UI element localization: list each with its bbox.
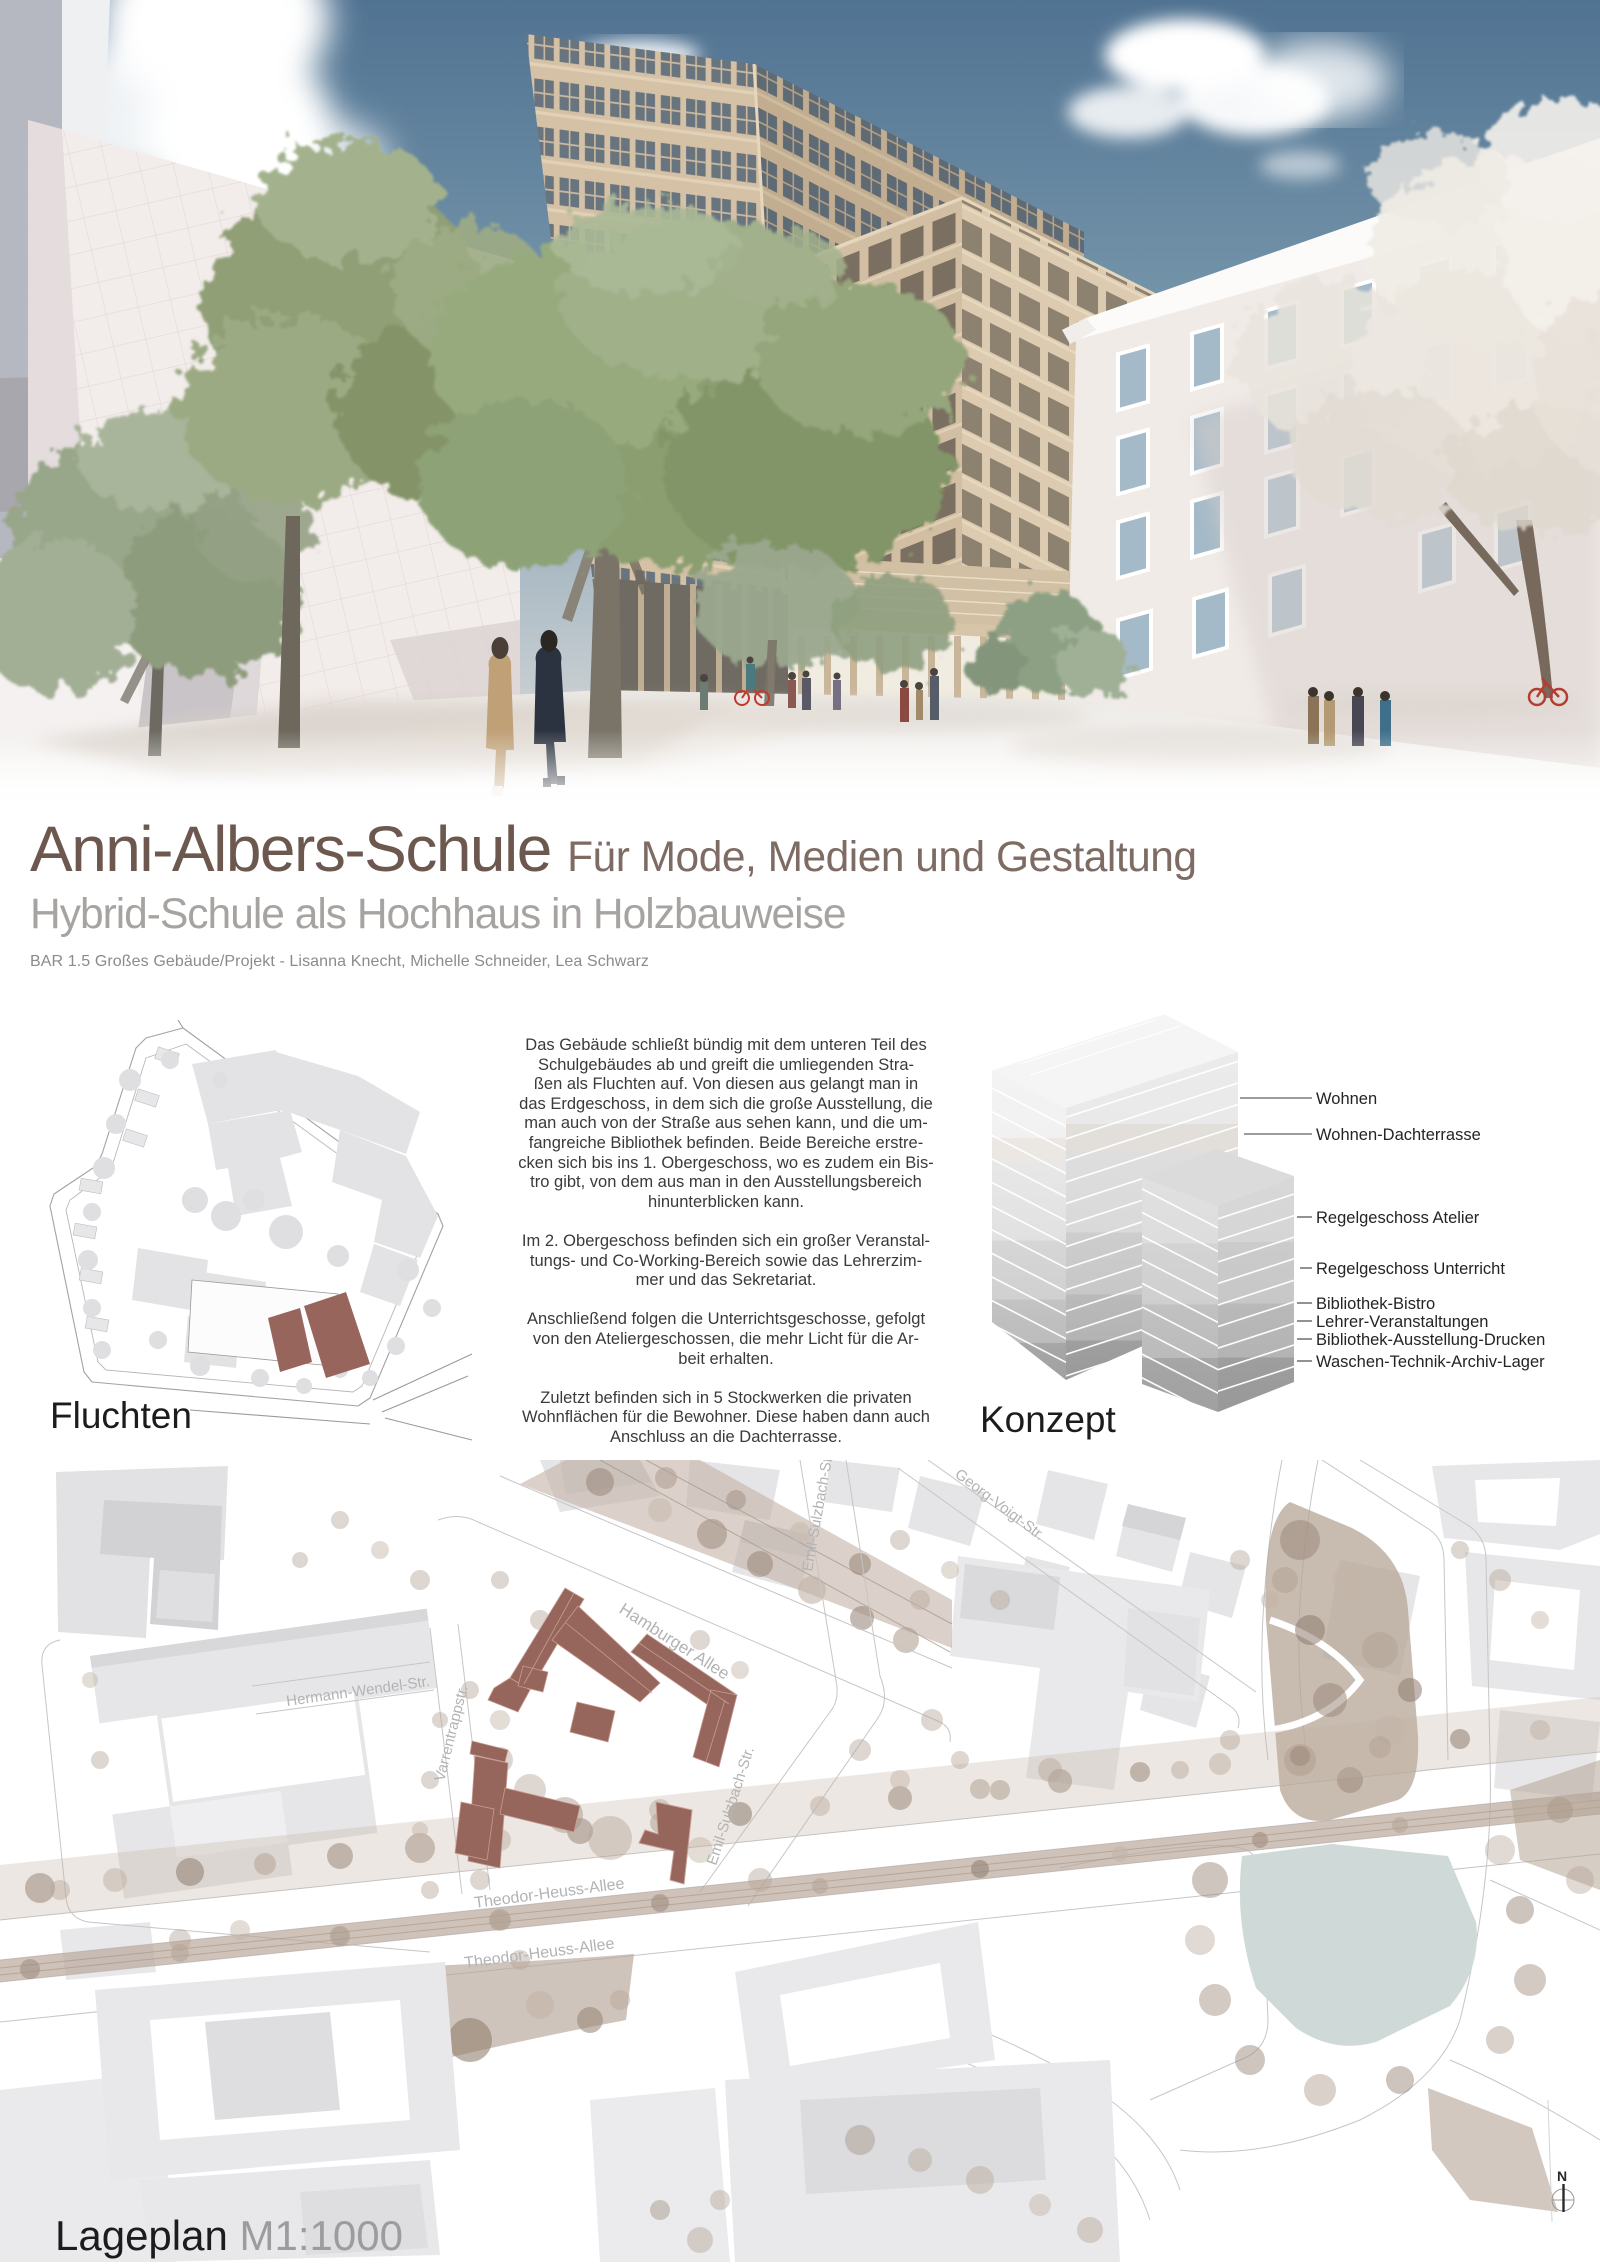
svg-text:Lageplan M1:1000: Lageplan M1:1000 bbox=[55, 2212, 403, 2259]
svg-text:Regelgeschoss Atelier: Regelgeschoss Atelier bbox=[1316, 1209, 1480, 1227]
svg-text:Bibliothek-Ausstellung-Drucken: Bibliothek-Ausstellung-Drucken bbox=[1316, 1331, 1545, 1349]
svg-text:Konzept: Konzept bbox=[980, 1399, 1116, 1440]
svg-text:Waschen-Technik-Archiv-Lager: Waschen-Technik-Archiv-Lager bbox=[1316, 1353, 1545, 1371]
svg-text:Wohnen-Dachterrasse: Wohnen-Dachterrasse bbox=[1316, 1126, 1481, 1144]
svg-text:Bibliothek-Bistro: Bibliothek-Bistro bbox=[1316, 1295, 1435, 1313]
svg-text:Regelgeschoss Unterricht: Regelgeschoss Unterricht bbox=[1316, 1260, 1505, 1278]
svg-text:Fluchten: Fluchten bbox=[50, 1395, 192, 1436]
svg-text:N: N bbox=[1557, 2168, 1567, 2184]
svg-text:Wohnen: Wohnen bbox=[1316, 1090, 1377, 1108]
svg-text:Lehrer-Veranstaltungen: Lehrer-Veranstaltungen bbox=[1316, 1313, 1488, 1331]
